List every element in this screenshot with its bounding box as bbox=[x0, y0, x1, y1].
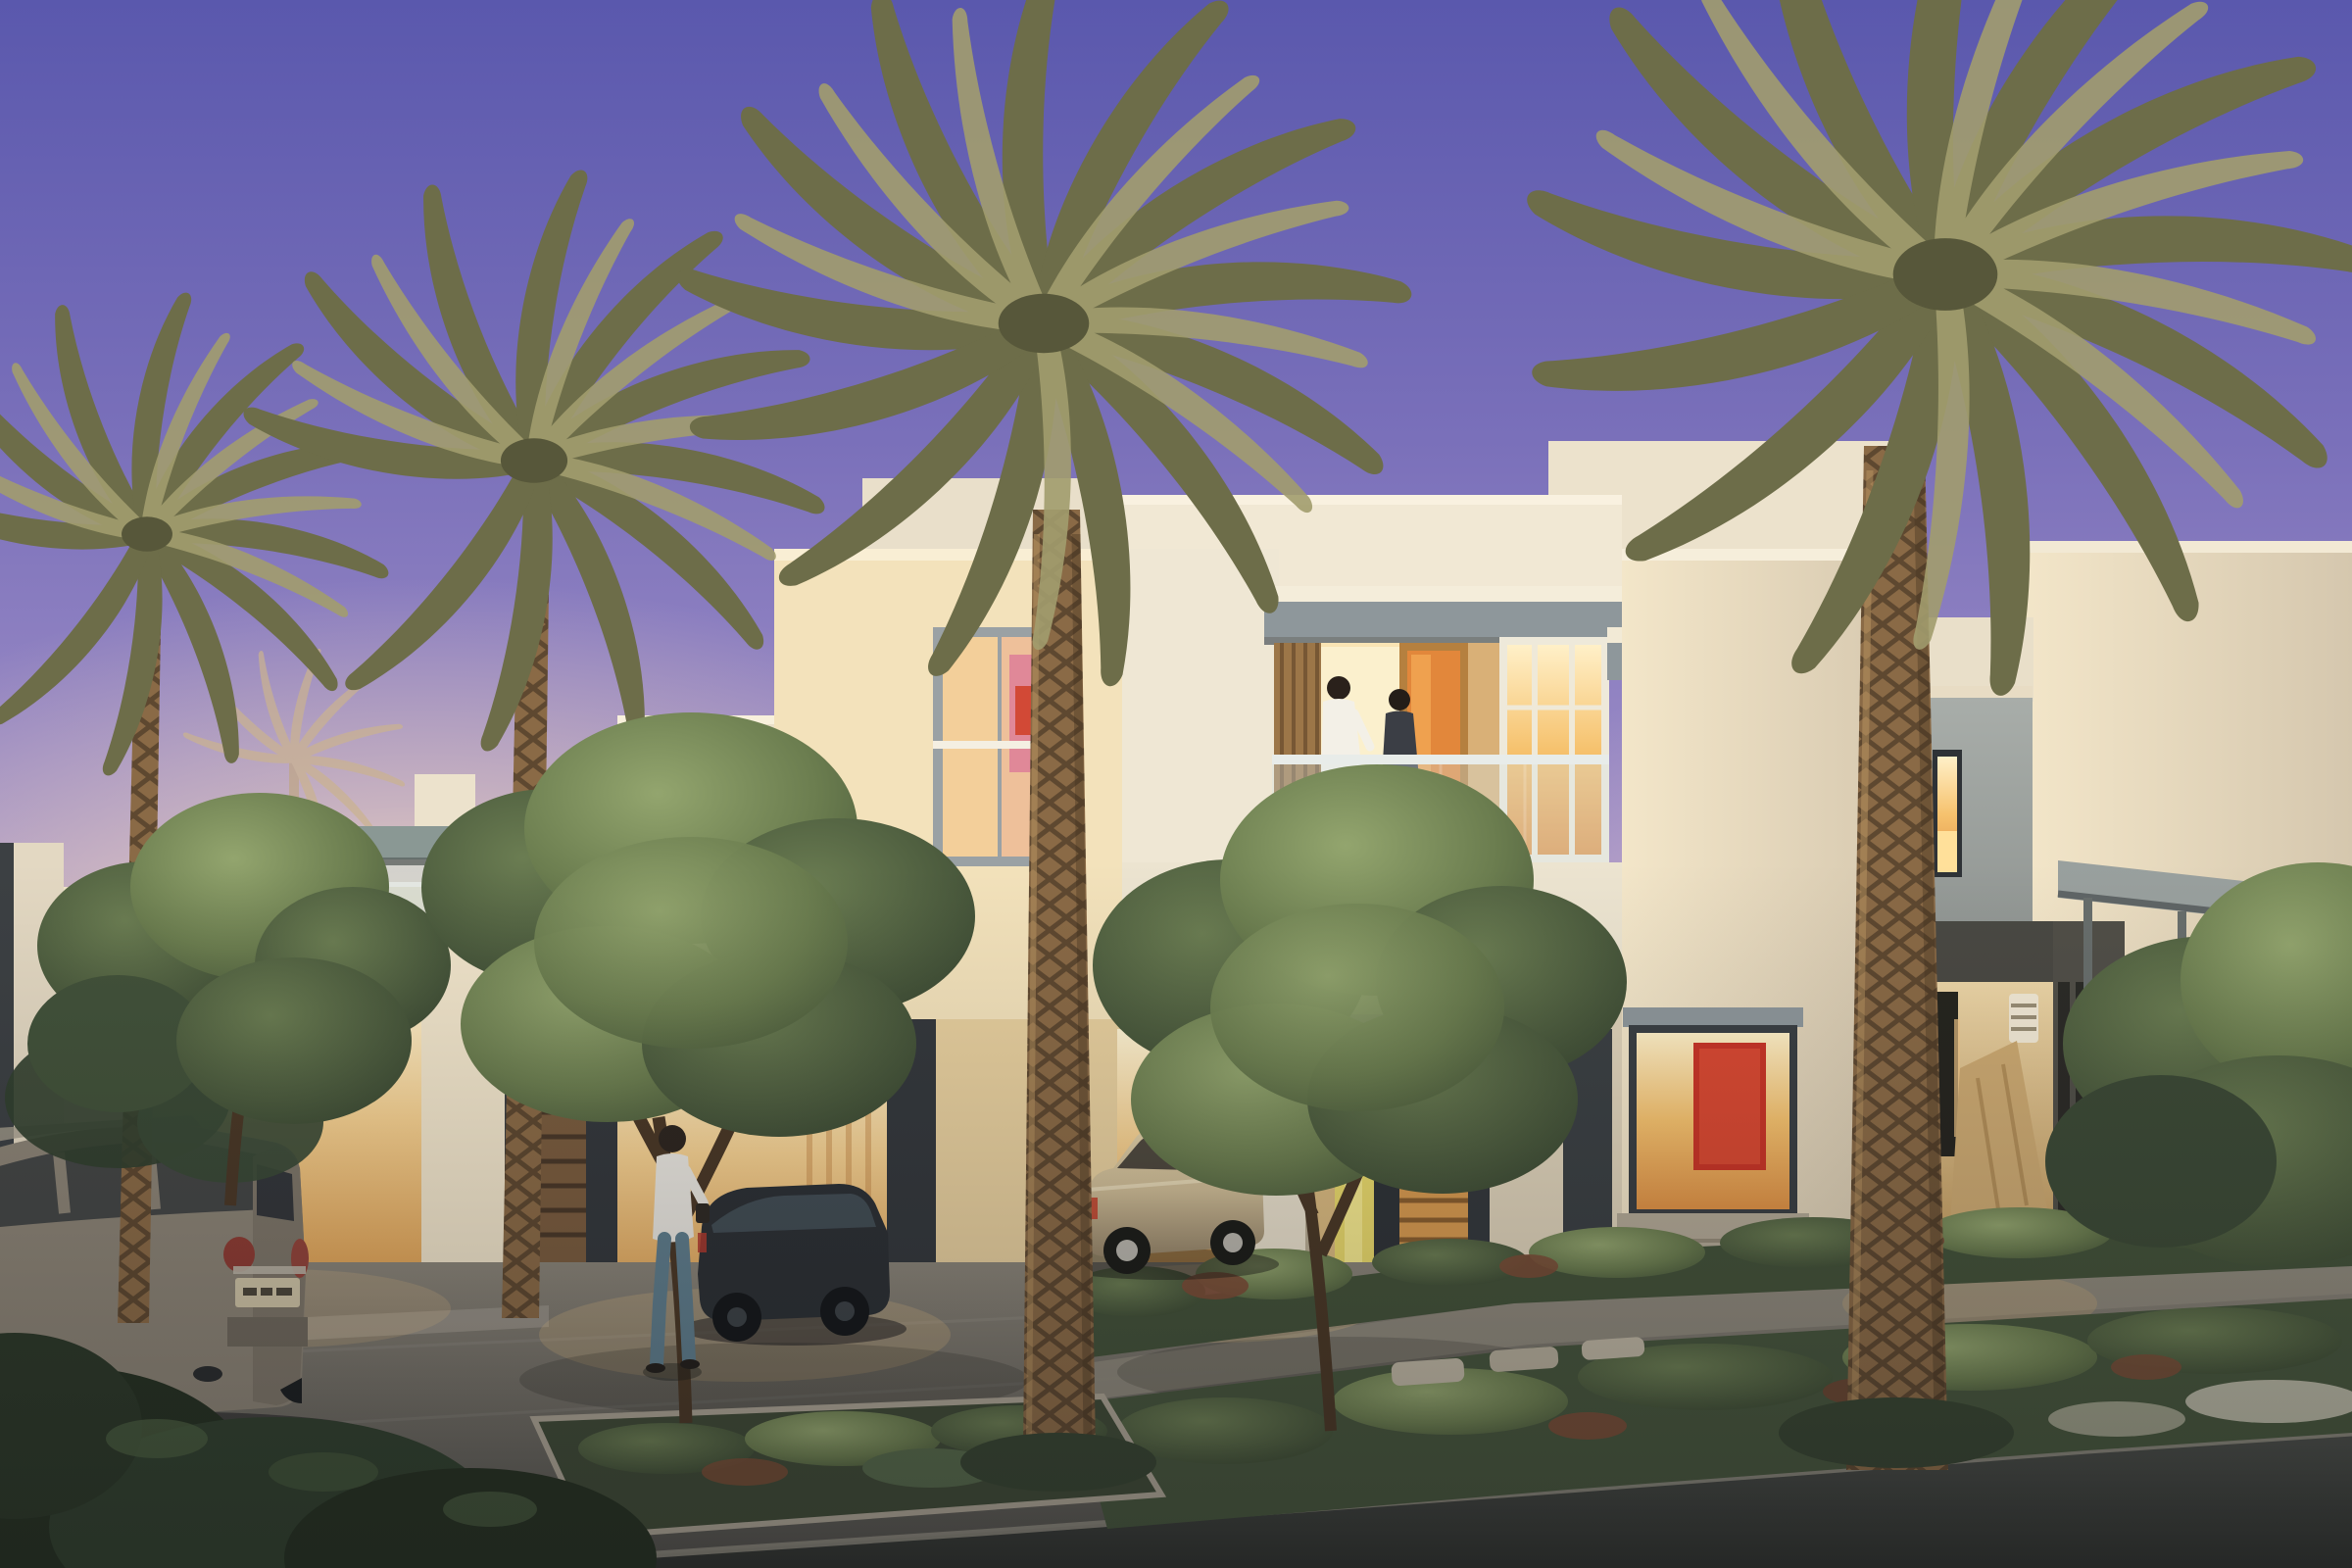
vignette bbox=[0, 0, 2352, 1568]
townhouse-dusk-rendering bbox=[0, 0, 2352, 1568]
rendering-canvas bbox=[0, 0, 2352, 1568]
foreground bbox=[0, 0, 2352, 1568]
